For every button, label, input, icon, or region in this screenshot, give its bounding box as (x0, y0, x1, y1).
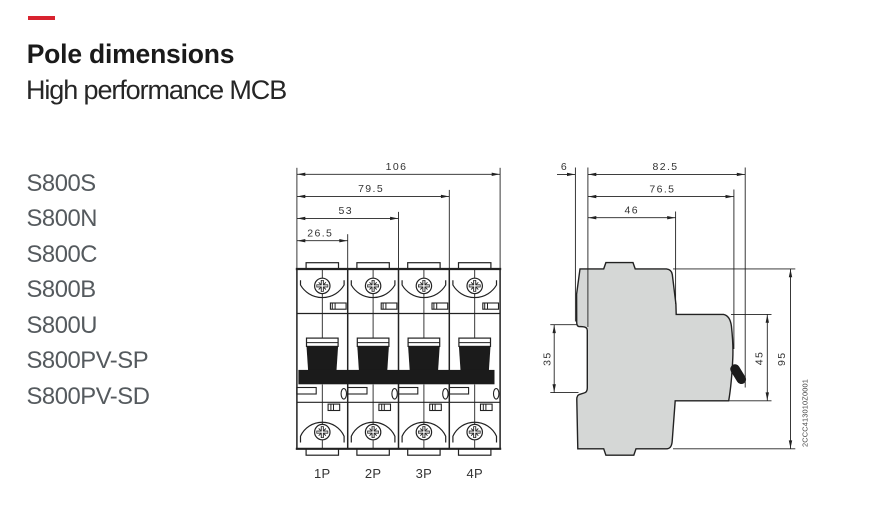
svg-text:79.5: 79.5 (358, 183, 384, 195)
svg-text:3P: 3P (416, 466, 433, 481)
svg-text:6: 6 (561, 161, 568, 173)
svg-text:45: 45 (754, 351, 766, 365)
svg-text:2P: 2P (365, 466, 382, 481)
svg-text:53: 53 (338, 205, 352, 217)
svg-text:76.5: 76.5 (649, 183, 675, 195)
svg-text:1P: 1P (314, 466, 331, 481)
svg-text:95: 95 (776, 352, 788, 366)
svg-text:4P: 4P (466, 466, 483, 481)
svg-text:46: 46 (625, 205, 639, 217)
svg-text:2CCC413010Z0001: 2CCC413010Z0001 (801, 379, 810, 447)
svg-text:82.5: 82.5 (653, 161, 679, 173)
svg-text:35: 35 (542, 351, 554, 365)
svg-text:106: 106 (386, 161, 408, 173)
svg-text:26.5: 26.5 (307, 228, 333, 240)
